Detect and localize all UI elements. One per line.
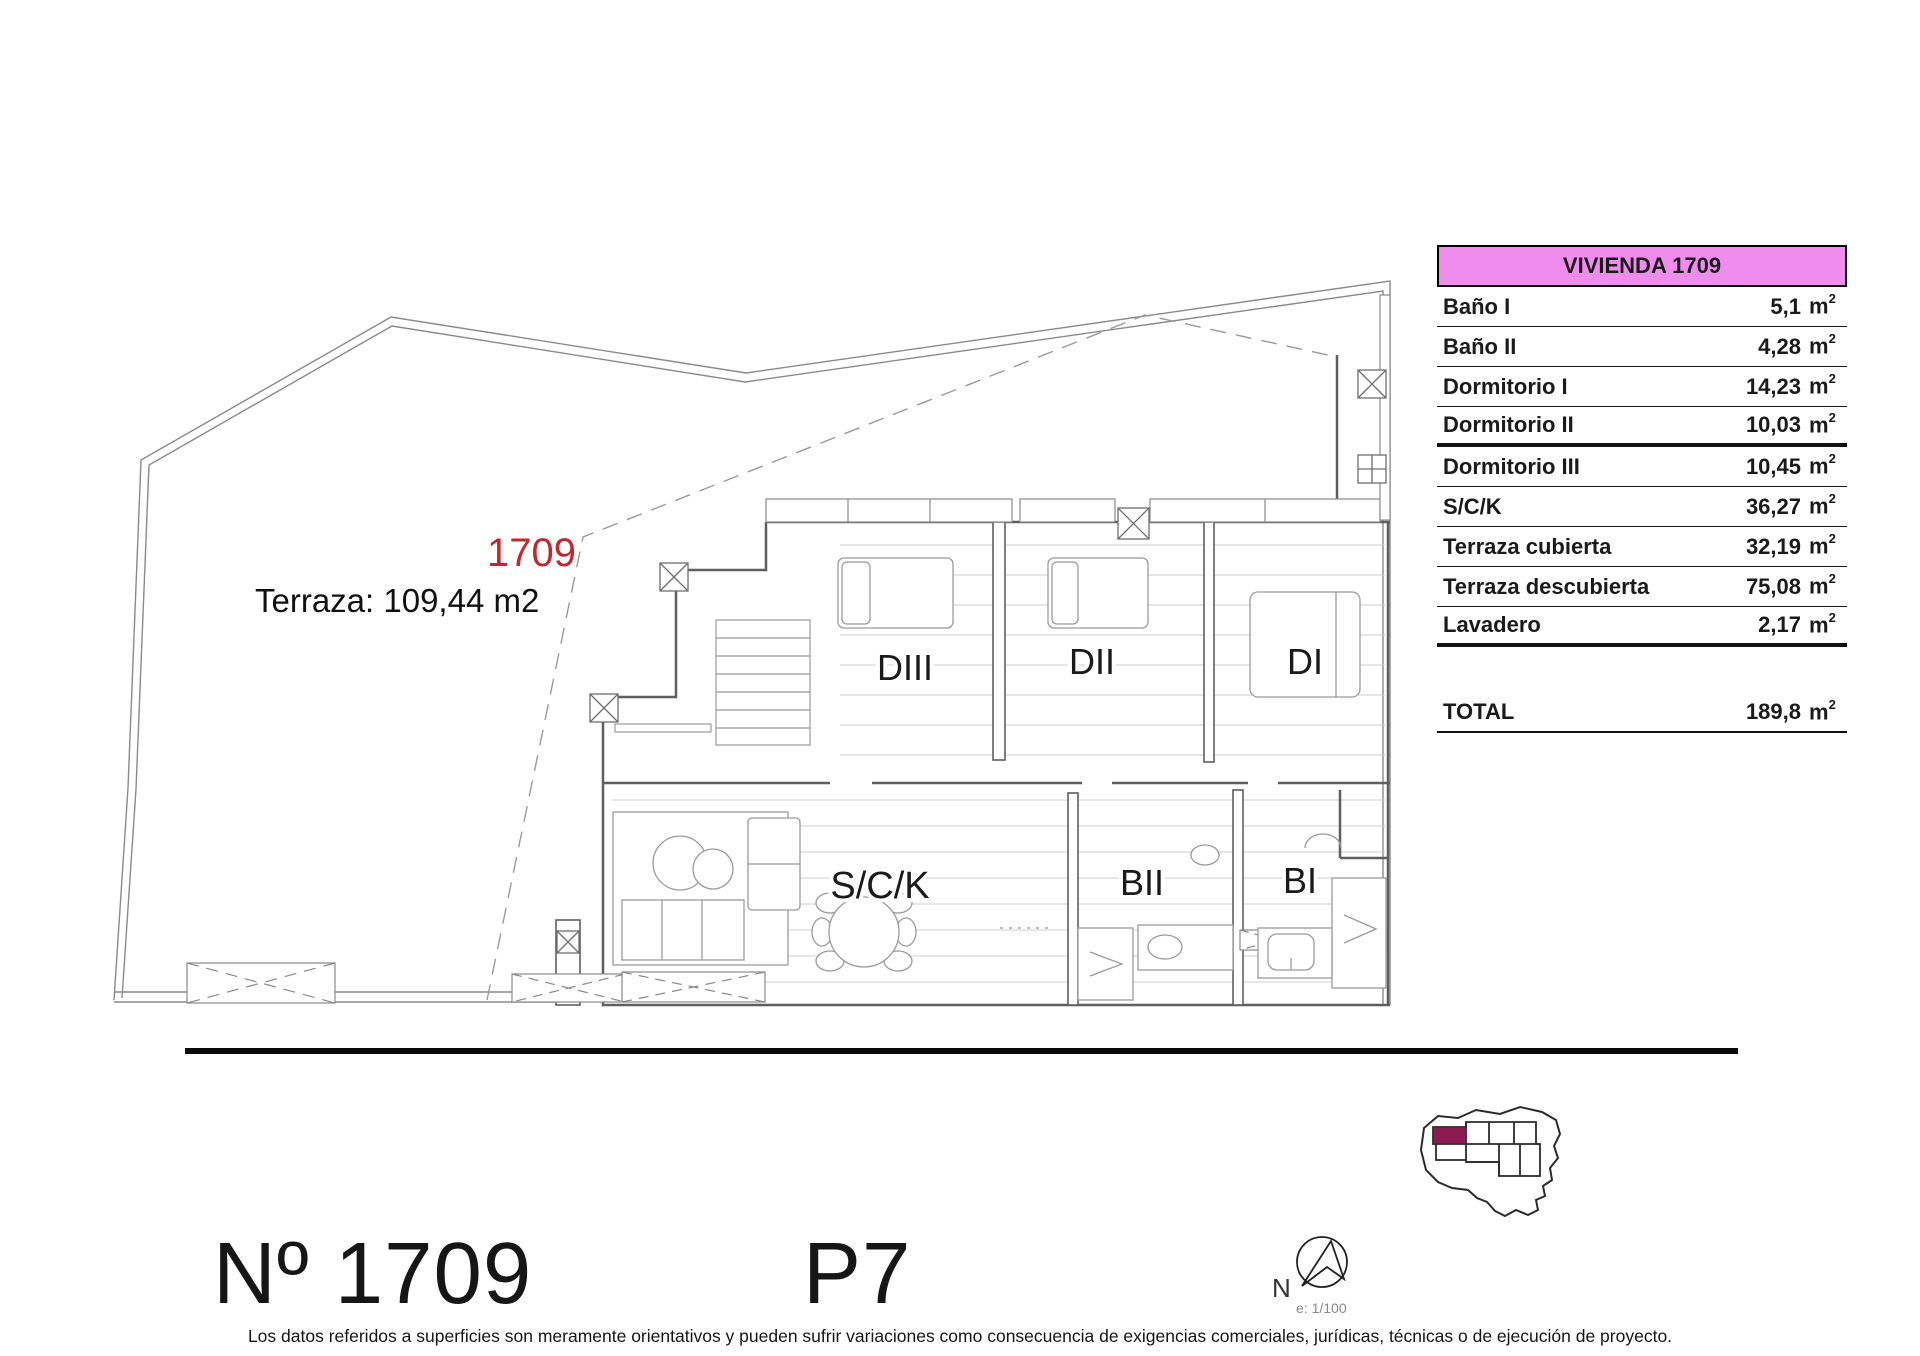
area-table-row: S/C/K 36,27 m2	[1437, 487, 1847, 527]
room-area: 75,08 m2	[1746, 573, 1845, 599]
total-row: TOTAL 189,8 m2	[1437, 693, 1847, 733]
room-name: Terraza cubierta	[1443, 534, 1611, 560]
room-label-sck: S/C/K	[830, 865, 929, 907]
area-table-row: Terraza descubierta 75,08 m2	[1437, 567, 1847, 607]
compass-scale-label: e: 1/100	[1296, 1300, 1347, 1316]
room-name: S/C/K	[1443, 494, 1502, 520]
area-table-row: Dormitorio I 14,23 m2	[1437, 367, 1847, 407]
area-table-row: Terraza cubierta 32,19 m2	[1437, 527, 1847, 567]
room-area: 10,03 m2	[1746, 412, 1845, 438]
room-label-bi: BI	[1283, 860, 1317, 901]
room-name: Dormitorio I	[1443, 374, 1568, 400]
area-table-row: Baño II 4,28 m2	[1437, 327, 1847, 367]
floor-title: P7	[803, 1224, 911, 1324]
north-compass	[1297, 1237, 1347, 1287]
room-name: Dormitorio II	[1443, 412, 1574, 438]
unit-number-red-label: 1709	[487, 531, 576, 575]
room-area: 14,23 m2	[1746, 373, 1845, 399]
room-area: 10,45 m2	[1746, 453, 1845, 479]
room-area: 32,19 m2	[1746, 533, 1845, 559]
highlighted-unit	[1433, 1127, 1466, 1144]
room-label-dii: DII	[1069, 641, 1115, 682]
room-name: Lavadero	[1443, 612, 1541, 638]
compass-north-label: N	[1272, 1273, 1291, 1303]
divider-line	[185, 1048, 1738, 1054]
area-table-row: Lavadero 2,17 m2	[1437, 607, 1847, 647]
room-label-bii: BII	[1120, 862, 1164, 903]
area-table-row: Baño I 5,1 m2	[1437, 287, 1847, 327]
room-area: 5,1 m2	[1770, 293, 1845, 319]
area-table-row: Dormitorio III 10,45 m2	[1437, 447, 1847, 487]
room-name: Dormitorio III	[1443, 454, 1580, 480]
compass-circle	[1297, 1237, 1347, 1287]
room-area: 2,17 m2	[1758, 612, 1845, 638]
area-table-title: VIVIENDA 1709	[1563, 253, 1721, 279]
area-table-header: VIVIENDA 1709	[1437, 245, 1847, 287]
compass-needle	[1302, 1241, 1344, 1286]
disclaimer-text: Los datos referidos a superficies son me…	[0, 1326, 1920, 1347]
total-value: 189,8 m2	[1746, 699, 1845, 725]
staircase	[615, 620, 810, 745]
room-label-di: DI	[1287, 641, 1323, 682]
room-label-diii: DIII	[877, 647, 933, 688]
room-name: Terraza descubierta	[1443, 574, 1649, 600]
area-table-rows: Baño I 5,1 m2 Baño II 4,28 m2 Dormitorio…	[1437, 287, 1847, 647]
window-band	[766, 295, 1390, 522]
area-table: VIVIENDA 1709 Baño I 5,1 m2 Baño II 4,28…	[1437, 245, 1847, 733]
room-area: 36,27 m2	[1746, 493, 1845, 519]
room-name: Baño I	[1443, 294, 1510, 320]
room-area: 4,28 m2	[1758, 333, 1845, 359]
area-table-row: Dormitorio II 10,03 m2	[1437, 407, 1847, 447]
terrace-area-label: Terraza: 109,44 m2	[255, 582, 539, 619]
total-label: TOTAL	[1443, 699, 1514, 725]
site-key-plan	[1421, 1107, 1560, 1216]
unit-number-title: Nº 1709	[213, 1224, 532, 1324]
room-name: Baño II	[1443, 334, 1516, 360]
